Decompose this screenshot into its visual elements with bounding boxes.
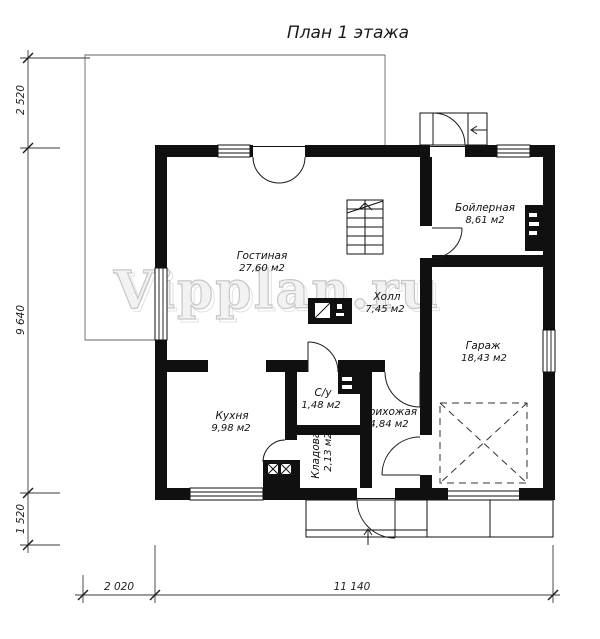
garage-dashed-marker — [440, 403, 527, 483]
vent-duct-kitchen — [263, 460, 300, 488]
room-name: Бойлерная — [455, 202, 515, 214]
door-french-living — [253, 147, 305, 184]
door-hall-boiler — [432, 228, 462, 258]
room-area: 18,43 м2 — [461, 353, 507, 364]
room-area: 1,48 м2 — [301, 400, 340, 411]
dim-left-middle: 9 640 — [15, 305, 27, 335]
room-area: 7,45 м2 — [365, 304, 404, 315]
boiler-porch — [420, 113, 487, 145]
room-name: Прихожая — [361, 406, 417, 418]
door-main-entrance — [357, 499, 395, 539]
room-name: Кладовая — [310, 425, 322, 478]
vent-duct-wc — [338, 372, 360, 394]
door-storage — [263, 440, 285, 462]
boiler-equipment — [525, 205, 543, 251]
door-boiler-exterior — [430, 113, 465, 147]
room-name: Кухня — [215, 410, 248, 422]
room-area: 4,84 м2 — [369, 419, 408, 430]
floor-plan-canvas: Vipplan.ru Vipplan.ru — [0, 0, 600, 639]
window-living-top — [218, 145, 250, 157]
room-name: Гараж — [466, 340, 501, 352]
entrance-porch — [306, 500, 427, 545]
room-area: 9,98 м2 — [211, 423, 250, 434]
door-entry-garage — [382, 437, 420, 475]
room-area: 8,61 м2 — [465, 215, 504, 226]
window-boiler-top — [497, 145, 530, 157]
page-title: План 1 этажа — [287, 23, 409, 43]
room-area: 2,13 м2 — [323, 432, 334, 471]
room-label-boiler: Бойлерная 8,61 м2 — [455, 202, 515, 226]
window-living-left — [155, 268, 167, 340]
room-name: С/у — [314, 387, 332, 399]
room-name: Гостиная — [237, 250, 288, 262]
dim-bottom-left: 2 020 — [104, 581, 134, 593]
garage-apron — [427, 500, 553, 537]
entry-arrow-left-icon — [471, 126, 487, 134]
room-name: Холл — [372, 291, 400, 303]
dimension-bottom: 2 020 11 140 — [75, 545, 560, 603]
dim-left-top: 2 520 — [15, 85, 27, 115]
window-kitchen-bottom — [190, 488, 263, 500]
door-hall-entryroom — [385, 372, 420, 407]
window-garage-right — [543, 330, 555, 372]
door-wc — [308, 342, 338, 372]
room-area: 27,60 м2 — [239, 263, 285, 274]
fireplace-icon — [308, 298, 352, 324]
dim-bottom-right: 11 140 — [334, 581, 371, 593]
room-label-kitchen: Кухня 9,98 м2 — [211, 410, 250, 434]
dimension-left: 2 520 9 640 1 520 — [15, 50, 90, 553]
stairs-icon — [347, 200, 383, 254]
garage-gate — [440, 488, 527, 500]
room-label-wc: С/у 1,48 м2 — [301, 387, 340, 411]
dim-left-bottom: 1 520 — [15, 504, 27, 534]
room-label-garage: Гараж 18,43 м2 — [461, 340, 507, 364]
